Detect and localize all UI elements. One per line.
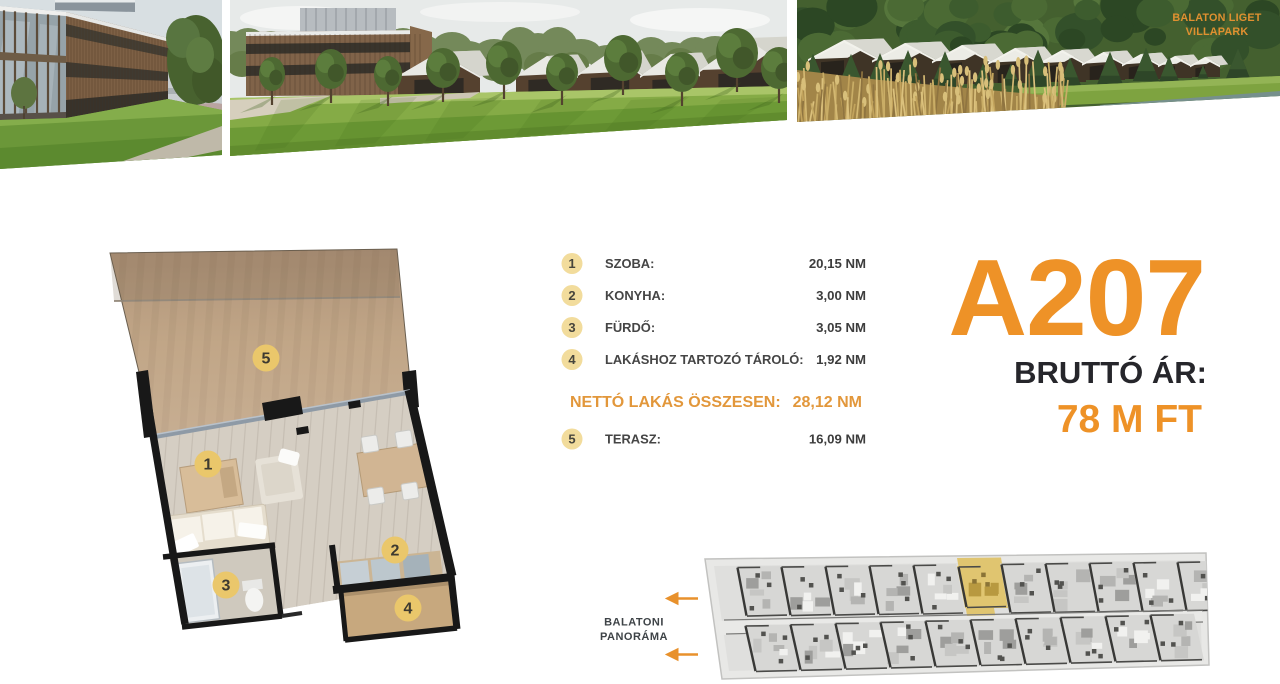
svg-text:16,09 NM: 16,09 NM [809,432,866,447]
svg-text:4: 4 [404,601,413,618]
svg-text:BALATON LIGET: BALATON LIGET [1172,12,1261,24]
svg-text:LAKÁSHOZ TARTOZÓ TÁROLÓ:: LAKÁSHOZ TARTOZÓ TÁROLÓ: [605,352,804,367]
svg-text:1: 1 [568,256,575,271]
svg-text:BRUTTÓ ÁR:: BRUTTÓ ÁR: [1014,354,1207,390]
svg-text:5: 5 [262,351,271,368]
svg-text:3: 3 [222,578,231,595]
svg-text:1: 1 [204,457,213,474]
svg-text:5: 5 [568,432,575,447]
svg-text:1,92 NM: 1,92 NM [816,352,866,367]
svg-text:A207: A207 [948,237,1205,359]
svg-text:3: 3 [568,320,575,335]
svg-text:TERASZ:: TERASZ: [605,432,661,447]
svg-text:3,05 NM: 3,05 NM [816,320,866,335]
svg-text:20,15 NM: 20,15 NM [809,256,866,271]
svg-text:BALATONI: BALATONI [604,617,664,629]
svg-text:28,12 NM: 28,12 NM [793,394,862,411]
svg-text:78 M FT: 78 M FT [1057,398,1202,441]
svg-text:SZOBA:: SZOBA: [605,256,654,271]
svg-text:PANORÁMA: PANORÁMA [600,630,668,643]
svg-text:KONYHA:: KONYHA: [605,288,665,303]
svg-text:NETTÓ LAKÁS ÖSSZESEN:: NETTÓ LAKÁS ÖSSZESEN: [570,392,781,411]
svg-text:3,00 NM: 3,00 NM [816,288,866,303]
svg-text:2: 2 [391,543,400,560]
svg-text:2: 2 [568,288,575,303]
svg-text:4: 4 [568,352,576,367]
svg-text:FÜRDŐ:: FÜRDŐ: [605,320,655,335]
svg-text:VILLAPARK: VILLAPARK [1186,26,1249,38]
